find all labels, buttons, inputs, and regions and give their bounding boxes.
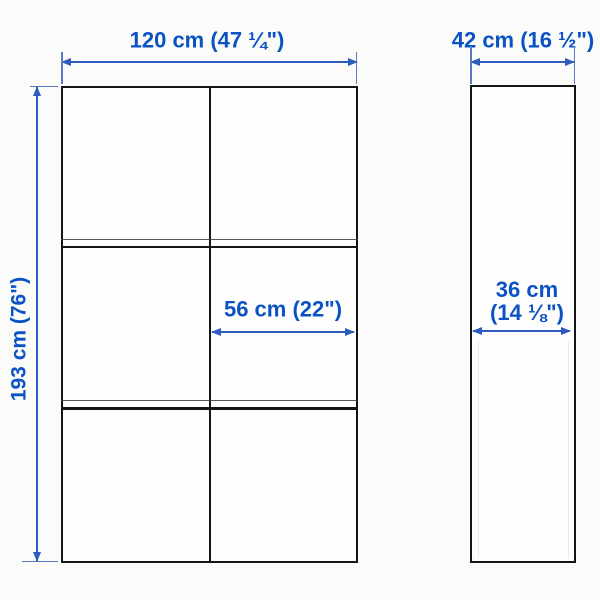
height-arrow	[36, 87, 38, 561]
front-view-shelf-line-1	[61, 239, 358, 240]
side-view-inner-edge-left	[478, 340, 479, 558]
inner-width-label: 56 cm (22")	[224, 298, 342, 321]
front-view-shelf-line-2	[61, 400, 358, 401]
side-width-extension-right	[574, 46, 576, 84]
height-label: 193 cm (76")	[8, 277, 31, 401]
front-view-divider-row-2	[61, 407, 358, 410]
height-tick-bottom	[22, 561, 58, 563]
front-width-extension-right	[356, 52, 358, 84]
depth-label-line1: 36 cm	[490, 278, 564, 301]
depth-label: 36 cm (14 ⅛")	[490, 278, 564, 324]
front-view-vertical-divider	[209, 86, 212, 563]
arrowhead-left-icon	[211, 328, 221, 336]
arrowhead-right-icon	[345, 328, 355, 336]
side-width-arrow	[471, 61, 574, 63]
height-tick-top	[30, 86, 58, 88]
front-view-divider-row-1	[61, 246, 358, 249]
depth-label-line2: (14 ⅛")	[490, 301, 564, 324]
arrowhead-left-icon	[470, 58, 480, 66]
inner-width-arrow	[212, 331, 354, 333]
depth-arrow	[473, 330, 570, 332]
front-width-label: 120 cm (47 ¼")	[130, 29, 285, 52]
arrowhead-right-icon	[561, 327, 571, 335]
arrowhead-left-icon	[472, 327, 482, 335]
arrowhead-left-icon	[61, 58, 71, 66]
front-width-arrow	[62, 61, 357, 63]
front-width-extension-left	[61, 52, 63, 84]
arrowhead-up-icon	[33, 86, 41, 96]
dimension-diagram: 120 cm (47 ¼") 42 cm (16 ½") 193 cm (76"…	[0, 0, 600, 600]
side-width-extension-left	[470, 46, 472, 84]
side-view-inner-edge-right	[568, 340, 569, 558]
